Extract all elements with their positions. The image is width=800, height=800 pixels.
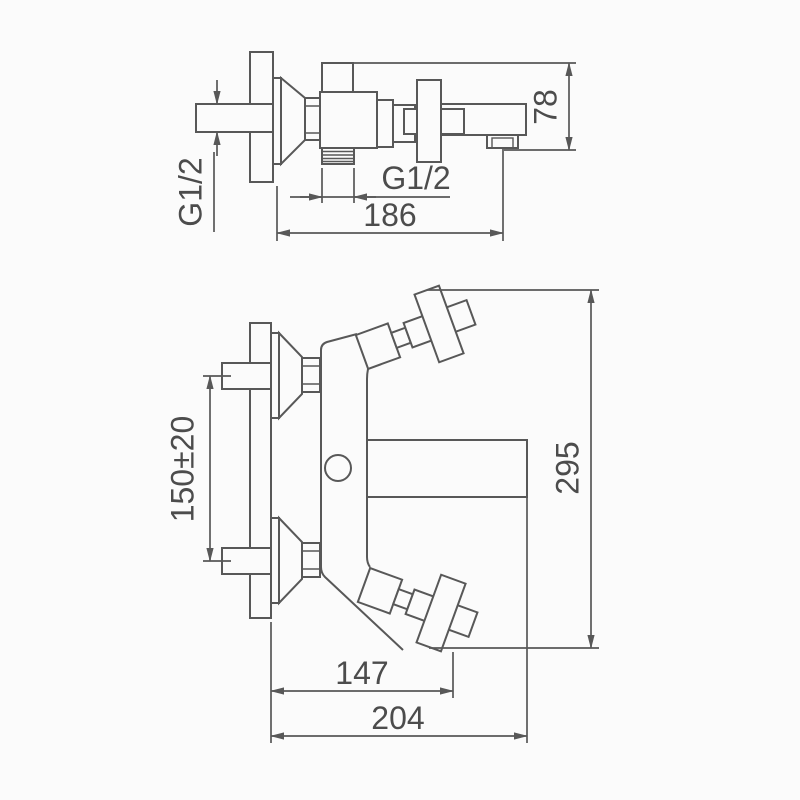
shower-port (322, 63, 353, 93)
dim-reach: 186 (363, 197, 416, 233)
valve-boss-top (356, 323, 400, 368)
dim-overall-width: 204 (371, 700, 424, 736)
dim-inlet-spacing: 150±20 (164, 416, 200, 523)
cross-handle-bottom (398, 568, 486, 659)
side-view: G1/2 (172, 52, 576, 241)
supply-pipe (196, 104, 273, 132)
dim-spout-thread-label: G1/2 (381, 160, 450, 196)
escutcheon-side (273, 78, 322, 164)
technical-drawing: G1/2 (0, 0, 800, 800)
escutcheon-top (271, 333, 320, 418)
drawing-canvas: G1/2 (0, 0, 800, 800)
spout-front (367, 440, 527, 497)
hose-thread (322, 148, 354, 164)
front-view: 150±20 295 147 204 (164, 278, 599, 743)
dim-150-lines (203, 376, 231, 561)
valve-boss-bottom (358, 568, 402, 613)
pipe-thread-dim (214, 80, 217, 232)
cartridge-collar (377, 100, 393, 147)
escutcheon-bottom (271, 518, 320, 603)
diverter-knob (325, 455, 351, 481)
dim-wall-thread-label: G1/2 (172, 157, 208, 226)
valve-assembly-bottom (352, 551, 486, 658)
valve-assembly-top (350, 278, 484, 385)
dim-handle-span: 147 (335, 655, 388, 691)
cross-handle-top (396, 278, 484, 369)
dim-height-side: 78 (527, 89, 563, 125)
faucet-body-side (320, 63, 415, 164)
aerator (487, 135, 518, 148)
dim-height-front: 295 (549, 441, 585, 494)
cross-handle-side (404, 80, 464, 162)
